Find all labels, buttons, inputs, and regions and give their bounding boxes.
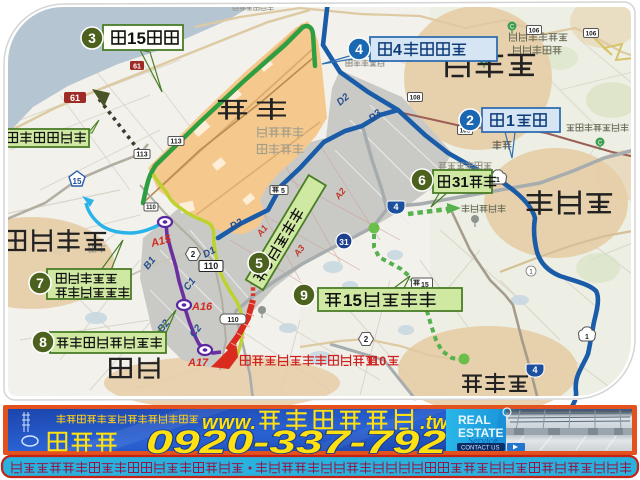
svg-text:C: C bbox=[510, 25, 515, 31]
svg-text:A16: A16 bbox=[191, 301, 213, 313]
svg-text:15: 15 bbox=[127, 29, 146, 48]
svg-text:113: 113 bbox=[136, 152, 147, 159]
svg-text:31: 31 bbox=[339, 237, 349, 247]
svg-text:C: C bbox=[598, 141, 603, 147]
svg-text:8: 8 bbox=[39, 334, 47, 350]
svg-text:110: 110 bbox=[146, 205, 156, 211]
svg-text:2: 2 bbox=[364, 335, 369, 344]
svg-text:1: 1 bbox=[506, 113, 515, 130]
svg-text:110: 110 bbox=[204, 261, 219, 271]
svg-text:108: 108 bbox=[410, 94, 421, 101]
svg-text:1: 1 bbox=[585, 334, 589, 341]
svg-text:REAL: REAL bbox=[458, 413, 491, 427]
svg-text:113: 113 bbox=[170, 139, 181, 146]
svg-text:61: 61 bbox=[70, 93, 80, 103]
svg-text:31: 31 bbox=[452, 174, 469, 191]
svg-text:61: 61 bbox=[133, 64, 141, 71]
svg-text:0920-337-792: 0920-337-792 bbox=[146, 424, 446, 460]
svg-text:110: 110 bbox=[227, 317, 238, 324]
svg-text:4: 4 bbox=[393, 202, 398, 212]
svg-text:5: 5 bbox=[281, 188, 285, 195]
svg-text:2: 2 bbox=[466, 112, 474, 128]
svg-text:15: 15 bbox=[343, 291, 362, 310]
svg-text:2: 2 bbox=[191, 250, 196, 259]
svg-text:9: 9 bbox=[300, 287, 308, 303]
svg-text:4: 4 bbox=[355, 41, 363, 57]
svg-text:7: 7 bbox=[36, 275, 44, 291]
svg-text:1: 1 bbox=[496, 177, 500, 184]
svg-text:15: 15 bbox=[73, 177, 82, 186]
svg-text:A17: A17 bbox=[187, 357, 209, 369]
svg-text:5: 5 bbox=[255, 255, 263, 271]
svg-text:4: 4 bbox=[393, 42, 402, 59]
svg-text:4: 4 bbox=[532, 365, 537, 375]
svg-text:106: 106 bbox=[529, 27, 540, 34]
svg-text:6: 6 bbox=[418, 172, 426, 188]
svg-text:CONTACT US: CONTACT US bbox=[461, 446, 499, 452]
svg-text:106: 106 bbox=[586, 30, 597, 37]
svg-text:110: 110 bbox=[366, 355, 386, 369]
svg-text:3: 3 bbox=[88, 30, 96, 46]
